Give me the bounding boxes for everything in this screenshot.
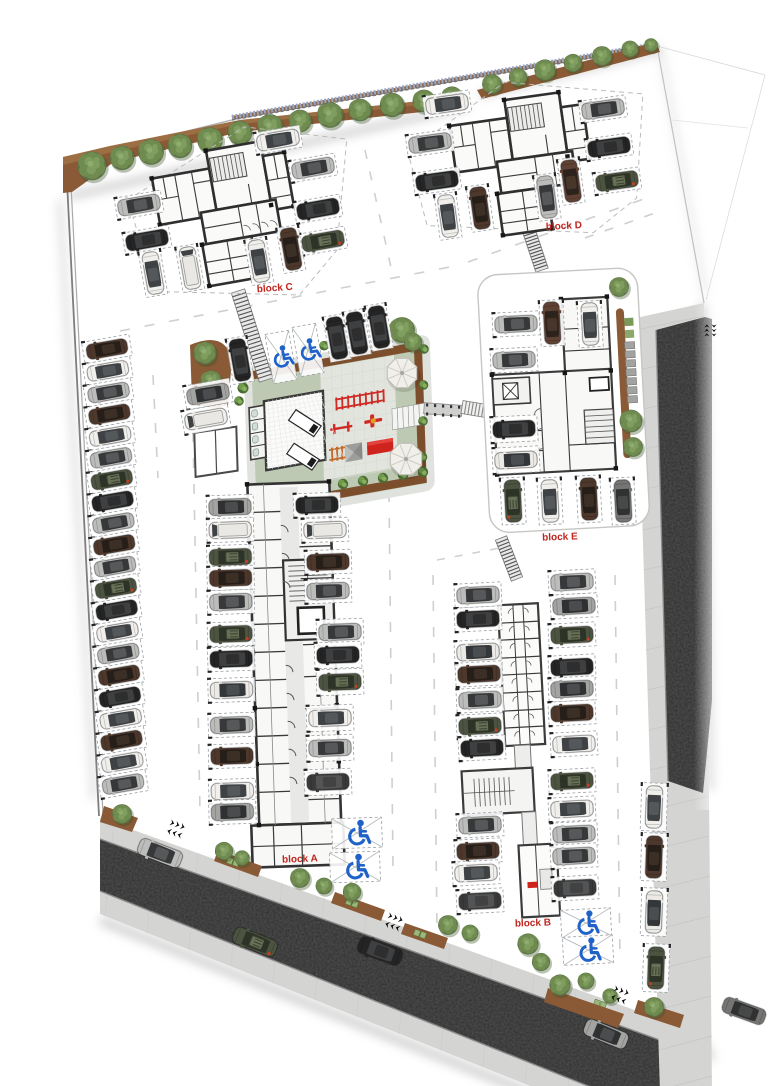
svg-text:block D: block D xyxy=(546,220,583,233)
svg-text:block E: block E xyxy=(542,531,578,543)
svg-text:block B: block B xyxy=(515,917,551,929)
svg-text:block A: block A xyxy=(282,853,318,865)
